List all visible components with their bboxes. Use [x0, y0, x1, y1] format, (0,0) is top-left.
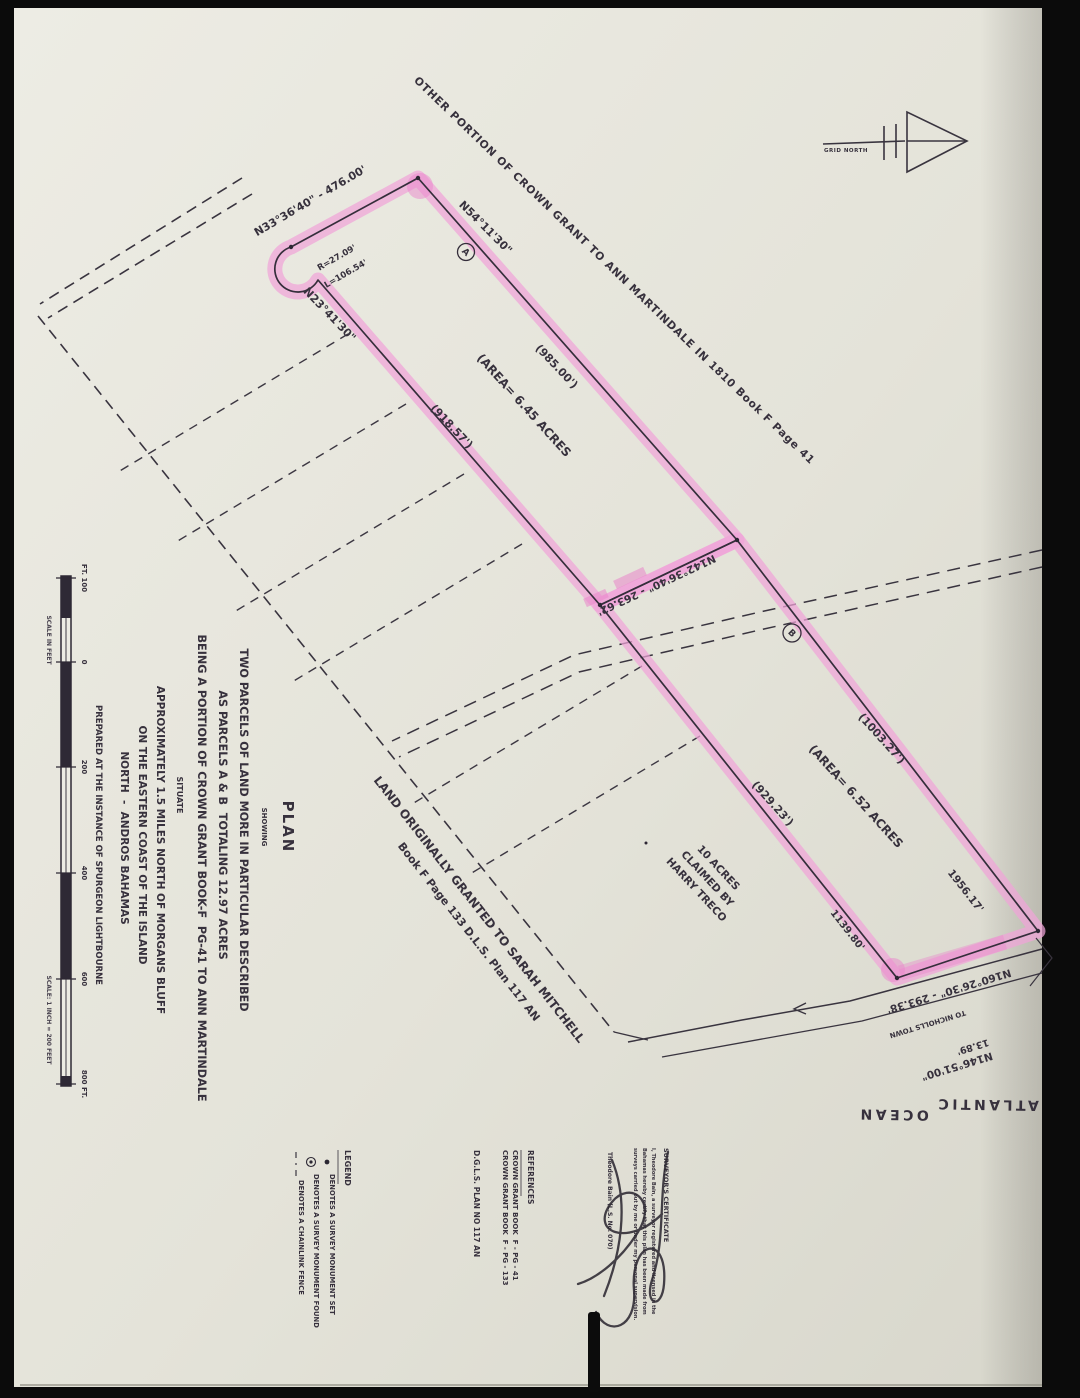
references-item3: D.G.L.S. PLAN NO 117 AN	[472, 1150, 481, 1257]
ocean-label-word2: OCEAN	[857, 1105, 929, 1122]
legend-item3-label: DENOTES A CHAINLINK FENCE	[297, 1180, 305, 1295]
scale-tick-label-2: 200	[80, 760, 88, 775]
scale-tick-label-5: 800 FT.	[80, 1070, 88, 1098]
scale-tick-label-4: 600	[80, 972, 88, 987]
survey-plan-scan: GRID NORTH FT. 100 0 200 400 600 800 FT.…	[0, 0, 1080, 1398]
title-showing: SHOWING	[260, 808, 268, 847]
title-line8: PREPARED AT THE INSTANCE OF SPURGEON LIG…	[93, 705, 103, 985]
scale-tick-label-3: 400	[80, 866, 88, 881]
title-line6: ON THE EASTERN COAST OF THE ISLAND	[136, 725, 148, 964]
title-line1: TWO PARCELS OF LAND MORE IN PARTICULAR D…	[237, 648, 250, 1011]
north-arrow-label: GRID NORTH	[824, 148, 868, 154]
certificate-line2: Bahamas hereby certify that this plan ha…	[641, 1148, 647, 1315]
legend-item1-label: DENOTES A SURVEY MONUMENT SET	[328, 1174, 336, 1315]
legend-header: LEGEND	[343, 1150, 352, 1186]
scale-tick-label-1: 0	[80, 660, 88, 665]
title-line4: SITUATE	[175, 777, 184, 814]
title-line7: NORTH - ANDROS BAHAMAS	[118, 751, 130, 924]
paper-edge-shade	[980, 8, 1042, 1387]
scale-tick-label-0: FT. 100	[80, 564, 88, 592]
scale-caption-bottom: SCALE: 1 INCH = 200 FEET	[45, 976, 52, 1066]
references-item1: CROWN GRANT BOOK F - PG - 41	[511, 1150, 519, 1281]
legend-monument-set-icon	[325, 1160, 330, 1165]
title-plan: PLAN	[279, 801, 297, 854]
references-item2: CROWN GRANT BOOK F - PG - 133	[501, 1150, 509, 1286]
legend-item2-label: DENOTES A SURVEY MONUMENT FOUND	[312, 1174, 320, 1328]
title-line5: APPROXIMATELY 1.5 MILES NORTH OF MORGANS…	[154, 686, 166, 1014]
scale-caption-top: SCALE IN FEET	[45, 615, 52, 665]
ocean-label-word1: ATLANTIC	[935, 1095, 1039, 1113]
legend-monument-found-icon-dot	[309, 1160, 312, 1163]
title-line2: AS PARCELS A & B TOTALING 12.97 ACRES	[216, 690, 229, 959]
references-header: REFERENCES	[526, 1150, 535, 1204]
scanned-survey-plan-page: GRID NORTH FT. 100 0 200 400 600 800 FT.…	[0, 0, 1080, 1398]
title-line3: BEING A PORTION OF CROWN GRANT BOOK-F PG…	[195, 635, 208, 1102]
registration-bar-mark	[588, 1312, 600, 1392]
highlight-blob-north-corner	[407, 173, 433, 199]
